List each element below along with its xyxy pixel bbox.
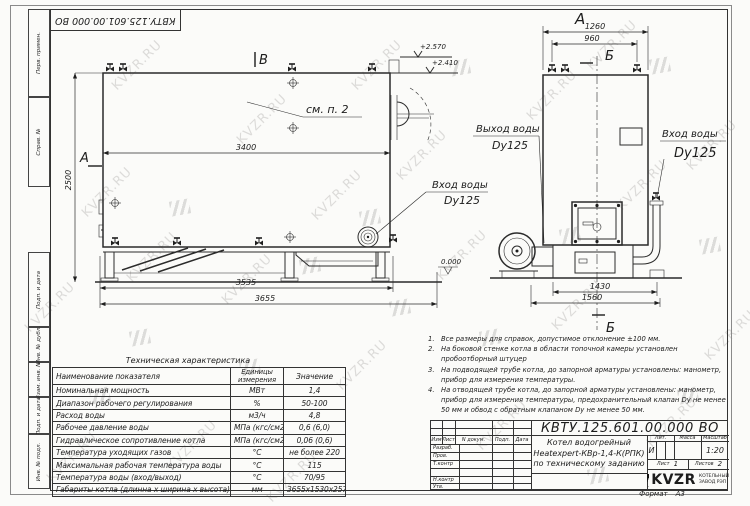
margin-cell-podp1: Подп. и дата xyxy=(28,252,50,327)
note-text: На подводящей трубе котла, до запорной а… xyxy=(441,365,726,385)
spec-cell: не более 220 xyxy=(284,446,346,458)
spec-cell: МВт xyxy=(231,385,284,397)
dim-label: 3655 xyxy=(255,294,275,303)
inlet-label: Вход воды xyxy=(662,129,718,140)
dim-label: 1560 xyxy=(582,293,602,302)
margin-cell-sprav: Справ. № xyxy=(28,97,50,187)
note-item: 4. На отводящей трубе котла, до запорной… xyxy=(428,385,726,416)
format-value: А3 xyxy=(676,490,685,498)
spec-cell: м3/ч xyxy=(231,409,284,421)
spec-cell: °С xyxy=(231,446,284,458)
spec-cell: % xyxy=(231,397,284,409)
tb-row-tkontr: Т.контр xyxy=(431,460,461,468)
section-letter: А xyxy=(79,151,89,166)
mass-header: Масса xyxy=(674,435,701,441)
product-line-1: Котел водогрейный xyxy=(547,438,631,448)
tb-col-podp: Подп. xyxy=(492,435,513,444)
inlet-flange-circle xyxy=(358,227,378,247)
blower-fan xyxy=(499,233,553,278)
sheets-cell: Листов 2 xyxy=(688,459,729,469)
tb-row-razrab: Разраб. xyxy=(431,444,461,452)
dim-label: 2500 xyxy=(64,170,73,190)
doc-number: КВТУ.125.601.00.000 ВО xyxy=(541,421,719,436)
dim-3400: 3400 xyxy=(103,143,390,153)
crosshair-marks xyxy=(109,77,299,243)
margin-cell-perv: Перв. примен. xyxy=(28,9,50,97)
note-item: 2. На боковой стенке котла в области топ… xyxy=(428,344,726,364)
outlet-callout: Выход воды Dy125 xyxy=(473,124,544,243)
inlet-callout-front: Вход воды Dy125 xyxy=(657,129,726,198)
dim-2500: 2500 xyxy=(64,73,103,282)
spec-row: Гидравлическое сопротивление котлаМПа (к… xyxy=(53,434,346,446)
top-valves xyxy=(106,64,376,72)
note-number: 1. xyxy=(428,334,441,344)
spec-cell: Максимальная рабочая температура воды xyxy=(53,459,231,471)
kvzr-logo-icon xyxy=(647,474,649,487)
dim-3535: 3535 xyxy=(100,256,393,292)
spec-row: Рабочее давление водыМПа (кгс/см2)0,6 (6… xyxy=(53,422,346,434)
note-text: Все размеры для справок, допустимое откл… xyxy=(441,334,726,344)
dim-1260: 1260 xyxy=(543,22,648,70)
spec-cell: 115 xyxy=(284,459,346,471)
spec-cell: Расход воды xyxy=(53,409,231,421)
sheets-value: 2 xyxy=(718,460,722,468)
section-letter: Б xyxy=(605,49,614,64)
sheets-label: Листов xyxy=(695,461,714,467)
corner-doc-number-box: КВТУ.125.601.00.000 ВО xyxy=(50,9,181,31)
section-mark-B-bottom: Б xyxy=(592,315,615,336)
base-frame-side xyxy=(101,248,390,281)
spec-table-block: Техническая характеристика Наименование … xyxy=(52,355,324,497)
spec-row: Температура воды (вход/выход)°С70/95 xyxy=(53,471,346,483)
spec-cell: 70/95 xyxy=(284,471,346,483)
note-ref-see-item-2: см. п. 2 xyxy=(247,102,362,117)
spec-cell: 0,06 (0,6) xyxy=(284,434,346,446)
note-text: На боковой стенке котла в области топочн… xyxy=(441,344,726,364)
outlet-label: Выход воды xyxy=(476,124,540,135)
spec-row: Максимальная рабочая температура воды°С1… xyxy=(53,459,346,471)
spec-row: Габариты котла (длинна х ширина х высота… xyxy=(53,484,346,496)
doc-number-cell: КВТУ.125.601.00.000 ВО xyxy=(531,421,729,435)
sheet-cell: Лист 1 xyxy=(647,459,688,469)
corner-doc-number: КВТУ.125.601.00.000 ВО xyxy=(55,15,175,26)
sheet-label: Лист xyxy=(657,461,670,467)
dim-3655: 3655 xyxy=(100,272,437,308)
dim-960: 960 xyxy=(552,34,637,62)
spec-cell: 4,8 xyxy=(284,409,346,421)
tb-row-prov: Пров. xyxy=(431,452,461,460)
spec-row: Номинальная мощностьМВт1,4 xyxy=(53,385,346,397)
section-mark-B-top: В xyxy=(255,52,268,68)
outlet-size: Dy125 xyxy=(492,139,528,152)
section-mark-A-left: А xyxy=(79,151,102,166)
margin-label: Подп. и дата xyxy=(36,270,42,308)
spec-cell: 0,6 (6,0) xyxy=(284,422,346,434)
company-name-line2: ЗАВОД РЭП xyxy=(699,480,729,486)
bottom-valves xyxy=(111,235,397,246)
spec-cell: 50-100 xyxy=(284,397,346,409)
spec-cell: Диапазон рабочего регулирования xyxy=(53,397,231,409)
section-letter: В xyxy=(259,53,268,68)
boiler-body-side xyxy=(99,73,390,247)
chimney-fittings xyxy=(389,60,434,142)
tb-col-data: Дата xyxy=(513,435,531,444)
spec-cell: 3655х1530х2570 xyxy=(284,484,346,496)
spec-row: Диапазон рабочего регулирования%50-100 xyxy=(53,397,346,409)
dim-label: 3400 xyxy=(236,143,256,152)
top-valves-front xyxy=(548,65,641,73)
spec-cell: Гидравлическое сопротивление котла xyxy=(53,434,231,446)
spec-cell: Температура уходящих газов xyxy=(53,446,231,458)
margin-label: Инв. № подл. xyxy=(36,442,42,481)
spec-row: Расход водым3/ч4,8 xyxy=(53,409,346,421)
boiler-side-view: +2.570 +2.410 В А см. п. 2 3400 2500 xyxy=(60,40,490,325)
dim-label: 1430 xyxy=(590,282,610,291)
margin-cell-podp2: Подп. и дата xyxy=(28,397,50,434)
spec-cell: Габариты котла (длинна х ширина х высота… xyxy=(53,484,231,496)
view-A-label: А xyxy=(574,10,585,28)
boiler-front-view: А 1260 960 Б xyxy=(440,0,750,340)
spec-row: Температура уходящих газов°Сне более 220 xyxy=(53,446,346,458)
tb-row-utv: Утв. xyxy=(431,483,461,491)
margin-label: Подп. и дата xyxy=(36,396,42,434)
margin-label: Справ. № xyxy=(36,128,42,155)
product-line-2: Heatexpert-КВр-1,4-К(РПК) xyxy=(533,449,644,459)
product-line-3: по техническому заданию xyxy=(533,459,644,469)
note-item: 3. На подводящей трубе котла, до запорно… xyxy=(428,365,726,385)
spec-cell: мм xyxy=(231,484,284,496)
company-name: КОТЕЛЬНЫЙ ЗАВОД РЭП xyxy=(699,474,729,485)
dim-label: 960 xyxy=(584,34,599,43)
spec-cell: °С xyxy=(231,471,284,483)
format-word: Формат xyxy=(639,490,667,498)
spec-table: Наименование показателя Единицы измерени… xyxy=(52,367,346,497)
margin-cell-vzam: Взам. инв. № xyxy=(28,362,50,397)
spec-table-title: Техническая характеристика xyxy=(52,355,324,367)
tb-col-docum: N докум. xyxy=(455,435,492,444)
note-item: 1. Все размеры для справок, допустимое о… xyxy=(428,334,726,344)
dim-1430: 1430 xyxy=(553,282,657,296)
spec-cell: 1,4 xyxy=(284,385,346,397)
boiler-body-front xyxy=(543,75,648,245)
company-cell: KVZR КОТЕЛЬНЫЙ ЗАВОД РЭП xyxy=(647,469,729,491)
spec-cell: Температура воды (вход/выход) xyxy=(53,471,231,483)
ground-line xyxy=(95,282,442,288)
note-number: 3. xyxy=(428,365,441,385)
margin-label: Взам. инв. № xyxy=(36,361,42,399)
tb-row-empty xyxy=(431,468,461,476)
dim-label: 3535 xyxy=(236,278,256,287)
kvzr-logo-text: KVZR xyxy=(651,472,696,488)
spec-cell: °С xyxy=(231,459,284,471)
tb-row-nkontr: Н.контр xyxy=(431,476,461,483)
margin-label: Инв. № дубл. xyxy=(36,325,42,363)
spec-cell: Номинальная мощность xyxy=(53,385,231,397)
scale-value: 1:20 xyxy=(701,441,729,459)
product-name-cell: Котел водогрейный Heatexpert-КВр-1,4-К(Р… xyxy=(531,435,647,473)
note-ref-label: см. п. 2 xyxy=(306,103,349,116)
spec-header: Единицы измерения xyxy=(231,368,284,385)
margin-cell-inv-podl: Инв. № подл. xyxy=(28,434,50,489)
notes-list: 1. Все размеры для справок, допустимое о… xyxy=(428,334,726,416)
spec-header: Наименование показателя xyxy=(53,368,231,385)
format-label: Формат А3 xyxy=(612,490,712,498)
margin-cell-inv-dubl: Инв. № дубл. xyxy=(28,327,50,362)
ground-line-front xyxy=(490,278,682,284)
spec-header: Значение xyxy=(284,368,346,385)
title-block: КВТУ.125.601.00.000 ВО Изм Лист N докум.… xyxy=(430,420,728,490)
base-front xyxy=(553,245,633,278)
note-text: На отводящей трубе котла, до запорной ар… xyxy=(441,385,726,416)
spec-cell: МПа (кгс/см2) xyxy=(231,422,284,434)
spec-cell: МПа (кгс/см2) xyxy=(231,434,284,446)
tb-col-list: Лист xyxy=(442,435,455,444)
margin-label: Перв. примен. xyxy=(36,32,42,74)
spec-header-row: Наименование показателя Единицы измерени… xyxy=(53,368,346,385)
spec-cell: Рабочее давление воды xyxy=(53,422,231,434)
sheet-value: 1 xyxy=(674,460,678,468)
note-number: 2. xyxy=(428,344,441,364)
inlet-size: Dy125 xyxy=(674,146,717,161)
dim-label: 1260 xyxy=(585,22,605,31)
lit-value: И xyxy=(647,441,656,459)
note-number: 4. xyxy=(428,385,441,416)
tb-col-izm: Изм xyxy=(431,435,442,444)
